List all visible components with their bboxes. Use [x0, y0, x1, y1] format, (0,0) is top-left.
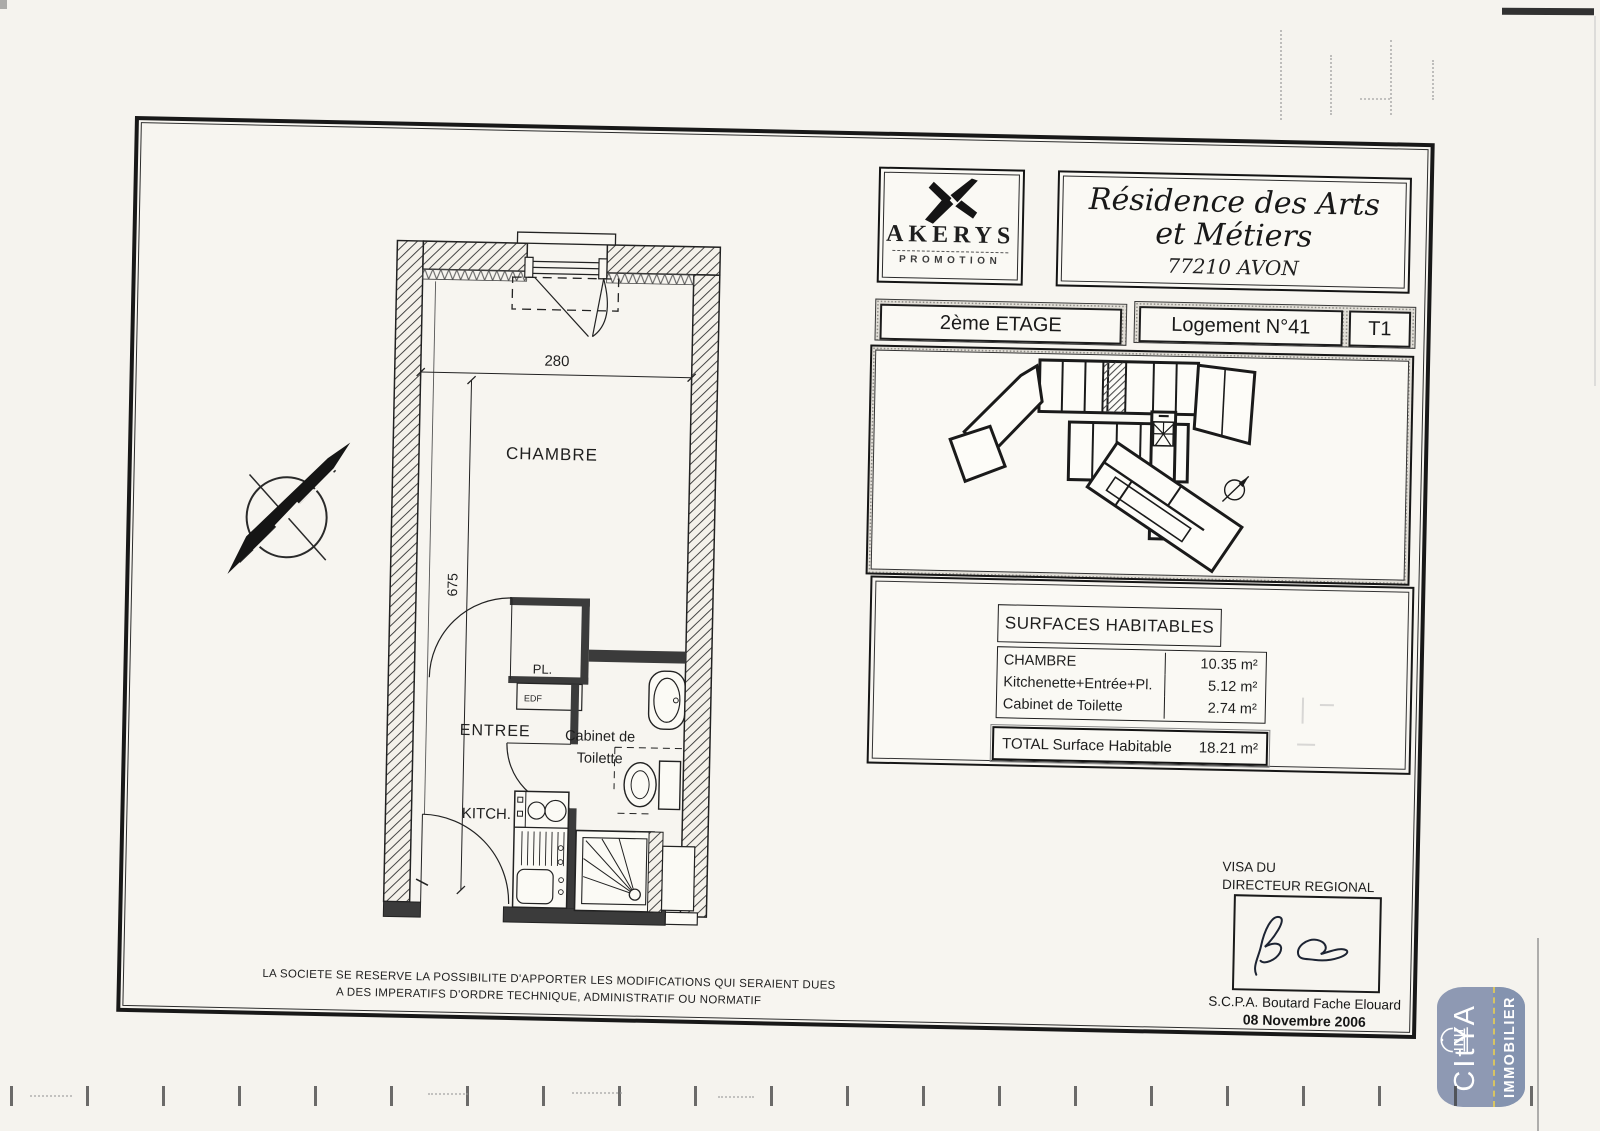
- room-label-kitchen: KITCH.: [462, 805, 512, 823]
- akerys-promotion-label: PROMOTION: [899, 254, 1001, 267]
- scan-artifact: [1390, 40, 1392, 115]
- north-arrow-icon: [225, 438, 356, 581]
- highlighted-unit-41: [1102, 361, 1126, 413]
- citya-division: IMMOBILIER: [1502, 996, 1518, 1098]
- building-site-map: [872, 351, 1410, 582]
- wall-left-cap: [383, 901, 420, 917]
- scan-artifact: [1360, 98, 1390, 100]
- scan-artifact: [1280, 30, 1282, 120]
- wall-right: [680, 275, 719, 917]
- visa-title: VISA DU DIRECTEUR REGIONAL: [1222, 858, 1375, 897]
- edf-label: EDF: [524, 693, 543, 703]
- wall-bathroom-top: [589, 650, 686, 664]
- siteplan-box: [866, 344, 1415, 585]
- room-label-toilette-2: Toilette: [576, 750, 622, 767]
- scan-artifact: [1432, 60, 1434, 100]
- scan-artifact-top-bar: [1502, 8, 1594, 15]
- scan-artifact: [30, 1095, 72, 1097]
- akerys-name: AKERYS: [886, 221, 1016, 251]
- toilet: [614, 747, 682, 814]
- total-value: 18.21 m²: [1199, 739, 1267, 757]
- surfaces-box: SURFACES HABITABLES CHAMBRE 10.35 m² Kit…: [867, 576, 1415, 775]
- dimension-width: 280: [417, 350, 697, 387]
- scan-artifact: [1297, 743, 1315, 747]
- unit-bar: Logement N°41 T1: [1133, 301, 1416, 349]
- wall-left: [384, 241, 424, 902]
- surface-label: Cabinet de Toilette: [997, 693, 1165, 719]
- surface-value: 10.35 m²: [1166, 656, 1266, 674]
- disclaimer-text: LA SOCIETE SE RESERVE LA POSSIBILITE D'A…: [244, 965, 855, 1012]
- surfaces-table: CHAMBRE 10.35 m² Kitchenette+Entrée+Pl. …: [996, 646, 1267, 724]
- residence-title-line2: et Métiers: [1155, 217, 1313, 253]
- logement-label: Logement N°41: [1138, 306, 1343, 346]
- table-row: Cabinet de Toilette 2.74 m²: [997, 693, 1265, 721]
- scan-artifact: [572, 1092, 622, 1094]
- plan-sheet-inner-border: AKERYS PROMOTION Résidence des Arts et M…: [122, 122, 1428, 1033]
- residence-title-box: Résidence des Arts et Métiers 77210 AVON: [1056, 170, 1412, 293]
- entry-door: [416, 814, 511, 904]
- floor-label: 2ème ETAGE: [879, 304, 1122, 345]
- room-label-toilette-1: Cabinet de: [565, 728, 635, 745]
- scan-artifact: [0, 0, 7, 9]
- kitchenette: [513, 791, 569, 908]
- washbasin: [648, 671, 685, 730]
- akerys-divider: [893, 250, 1008, 253]
- scan-artifact: [718, 1096, 754, 1098]
- akerys-star-icon: [920, 177, 983, 224]
- scan-artifact: [1302, 698, 1315, 724]
- svg-text:675: 675: [444, 573, 460, 597]
- scanned-floorplan-page: { "branding": { "akerys": { "name": "AKE…: [0, 0, 1600, 1131]
- surfaces-total-row: TOTAL Surface Habitable 18.21 m²: [992, 726, 1269, 766]
- citya-brand: CItYA: [1449, 1003, 1482, 1092]
- shower: [574, 830, 654, 912]
- unit-type-label: T1: [1348, 310, 1411, 347]
- closet-pl: PL. EDF: [429, 595, 590, 710]
- siteplan-compass-icon: [1222, 476, 1248, 502]
- svg-text:280: 280: [544, 353, 569, 371]
- residence-city: 77210 AVON: [1167, 253, 1299, 280]
- surface-value: 5.12 m²: [1165, 678, 1265, 696]
- wall-top-left: [423, 241, 528, 271]
- akerys-logo-box: AKERYS PROMOTION: [877, 167, 1025, 286]
- signature-icon: [1234, 896, 1376, 987]
- surfaces-title: SURFACES HABITABLES: [997, 604, 1222, 647]
- floor-bar: 2ème ETAGE: [874, 299, 1127, 346]
- apartment-floor-plan: 280 675 CHAMBRE PL. EDF: [375, 228, 734, 937]
- surface-value: 2.74 m²: [1165, 700, 1265, 718]
- room-label-chambre: CHAMBRE: [506, 444, 598, 465]
- scan-artifact: [1320, 704, 1334, 708]
- bottom-tick-strip: [10, 1086, 1582, 1106]
- signature-box: [1232, 894, 1382, 993]
- room-label-entree: ENTREE: [460, 722, 531, 740]
- total-label: TOTAL Surface Habitable: [994, 735, 1199, 756]
- visa-date: 08 Novembre 2006: [1169, 1010, 1439, 1032]
- residence-title-line1: Résidence des Arts: [1089, 182, 1381, 221]
- closet-label: PL.: [533, 661, 553, 676]
- plan-sheet-frame: AKERYS PROMOTION Résidence des Arts et M…: [116, 116, 1434, 1039]
- scan-artifact-right-line: [1594, 16, 1596, 386]
- scan-artifact: [1330, 55, 1332, 115]
- scan-artifact: [428, 1093, 468, 1095]
- wall-top-right: [607, 245, 721, 275]
- scan-artifact-vertical-line: [1537, 938, 1539, 1131]
